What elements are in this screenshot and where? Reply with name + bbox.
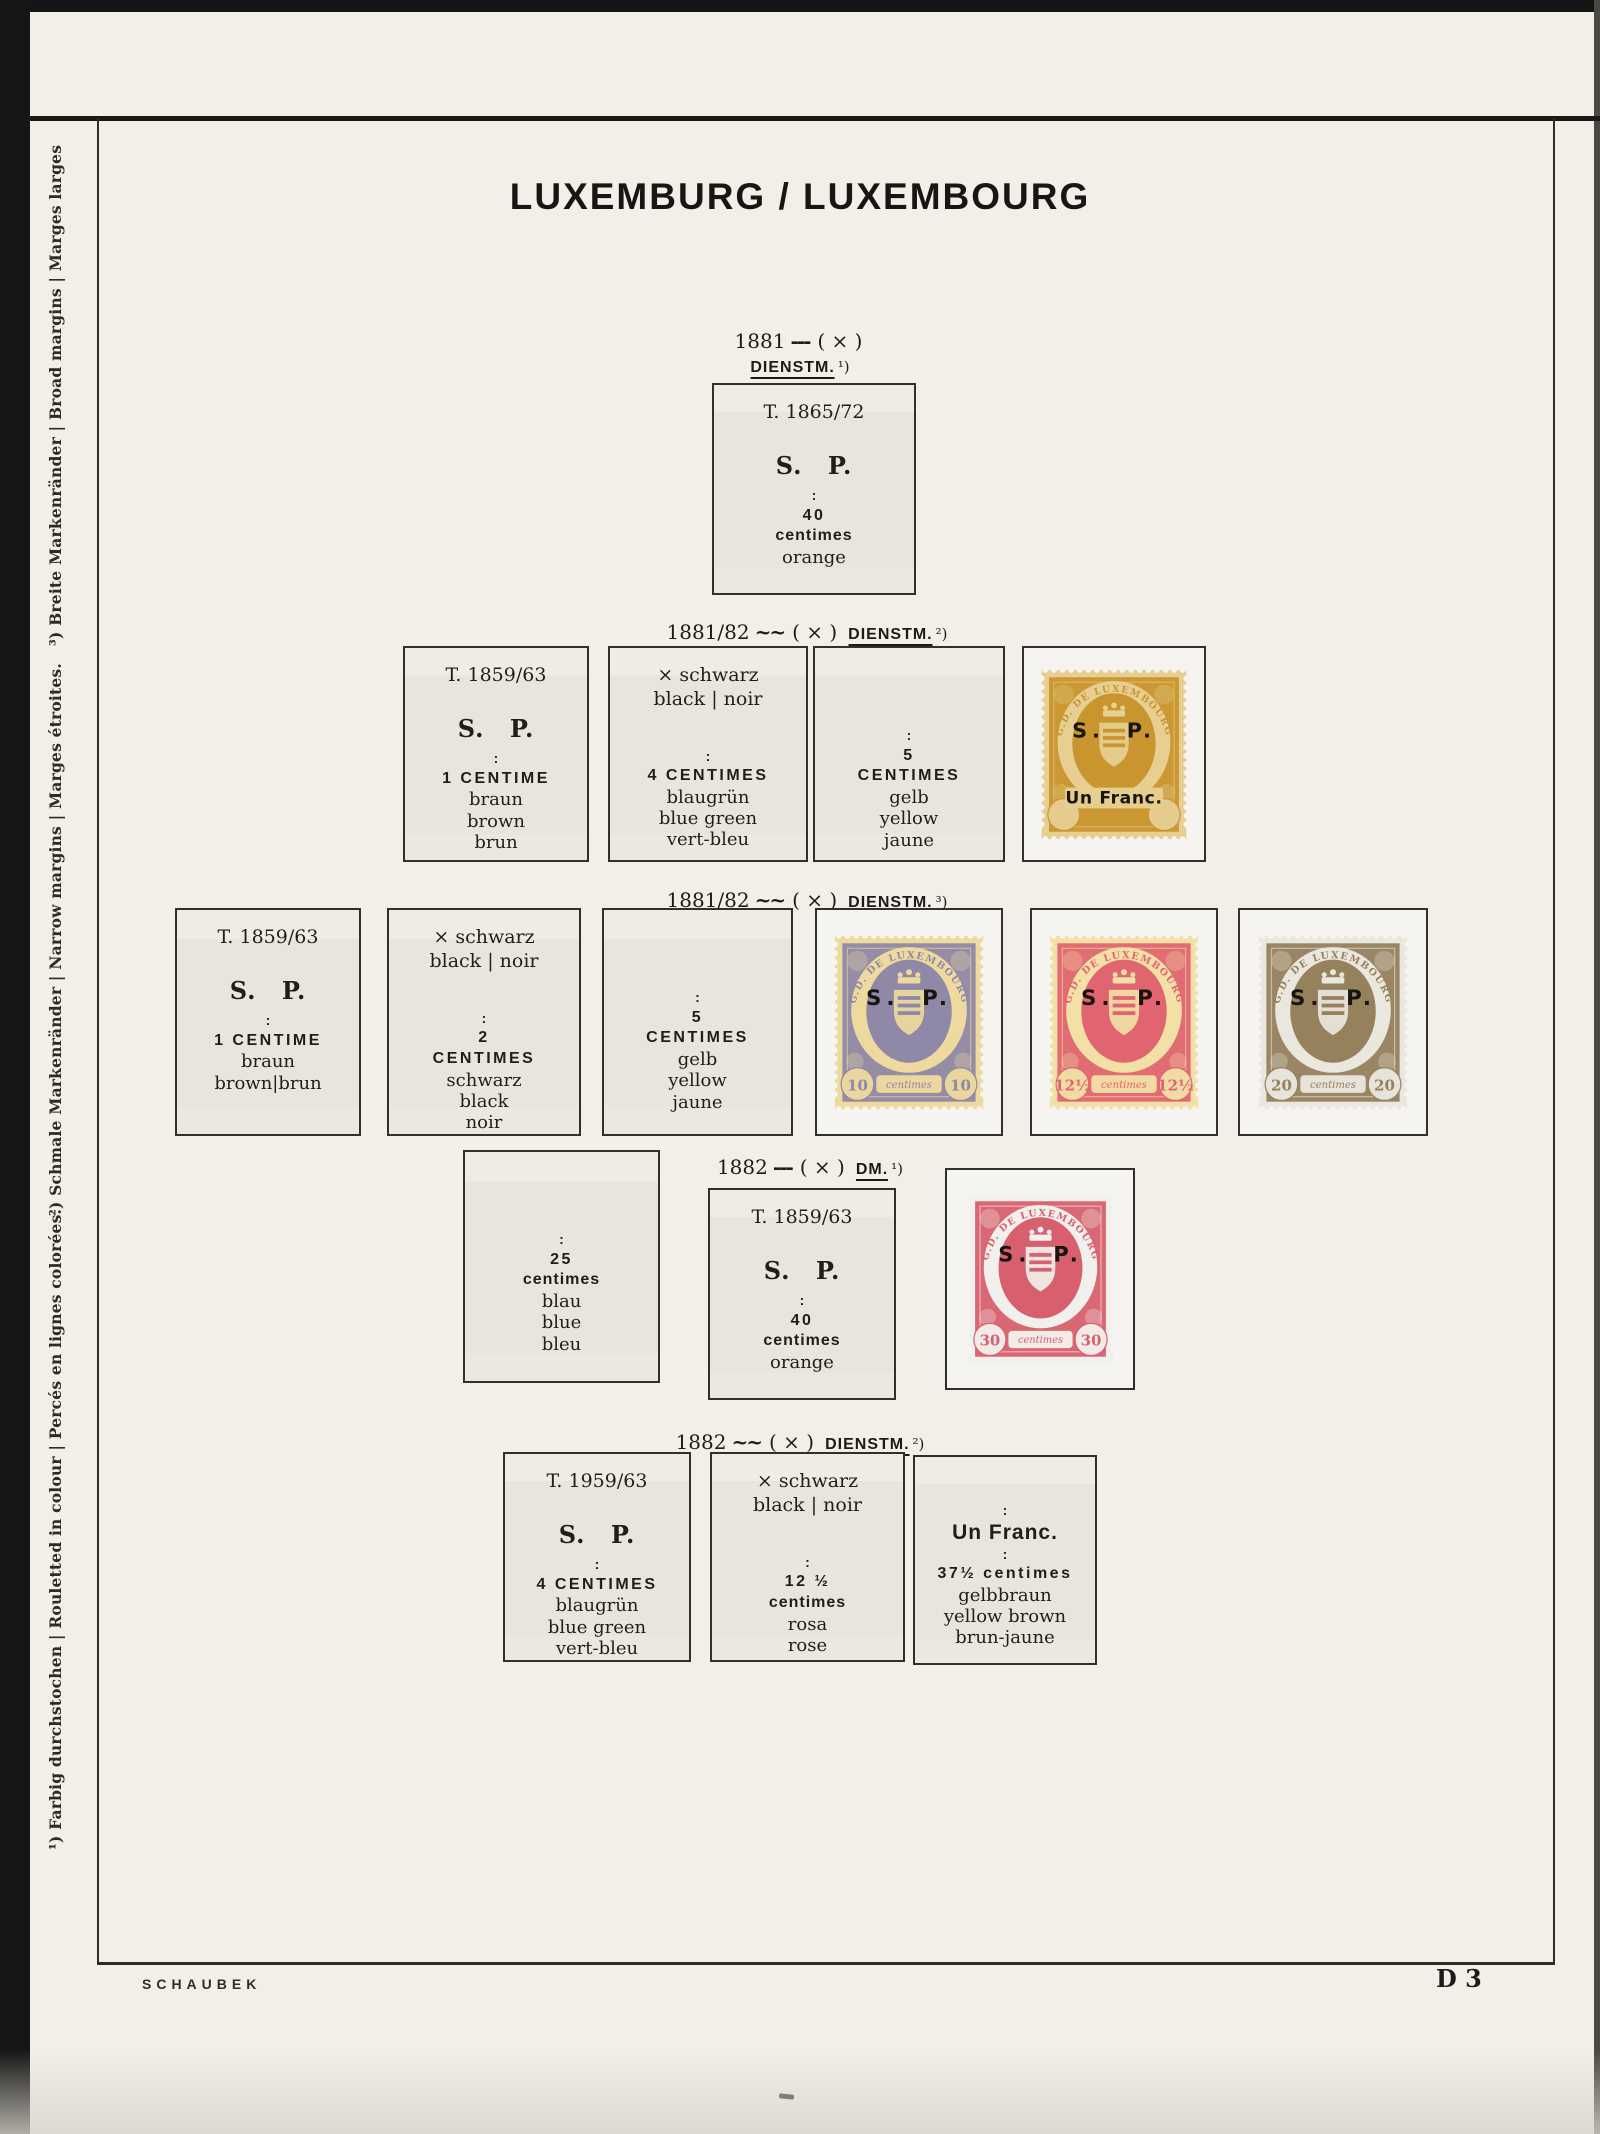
stamp-value-left: 30 <box>979 1333 1000 1350</box>
box-text-line: 40 <box>710 1311 894 1332</box>
placeholder-40-centimes-orange-2: T. 1859/63S. P.:40centimesorange <box>708 1188 896 1400</box>
box-text-line: brun <box>405 832 587 853</box>
sp-overprint-text: S. P. <box>866 985 952 1010</box>
box-text-line: : <box>604 991 791 1004</box>
placeholder-un-franc-37half: :Un Franc.:37½ centimesgelbbraunyellow b… <box>913 1455 1097 1665</box>
header-perf-mark: ( × ) <box>817 329 862 353</box>
box-text-line: gelb <box>604 1049 791 1070</box>
box-text-line: S. P. <box>714 451 914 480</box>
placeholder-5-centimes-gelb-narrow: :5CENTIMESgelbyellowjaune <box>602 908 793 1136</box>
box-text-line: centimes <box>710 1331 894 1352</box>
header-separator: ~~ <box>755 620 785 644</box>
box-text-line: CENTIMES <box>815 766 1003 787</box>
box-text-line: braun <box>177 1051 359 1072</box>
stamp-banner-text: centimes <box>1310 1079 1356 1090</box>
scan-edge-top <box>0 0 1600 12</box>
box-text-line: : <box>405 752 587 765</box>
placeholder-4-centimes-blaugruen: × schwarzblack | noir:4 CENTIMESblaugrün… <box>608 646 808 862</box>
header-date: 1881/82 <box>666 620 749 644</box>
stamp-value-left: 10 <box>847 1076 868 1094</box>
box-text-line: yellow brown <box>915 1606 1095 1627</box>
stamp-value-left: 20 <box>1271 1076 1292 1094</box>
header-footnote-ref: ²) <box>936 625 948 643</box>
scan-shadow-bottom <box>0 2050 1600 2134</box>
box-text-line: black | noir <box>712 1494 903 1518</box>
placeholder-4-centimes-blaugruen-2: T. 1959/63S. P.:4 CENTIMESblaugrünblue g… <box>503 1452 691 1662</box>
box-text-line: 4 CENTIMES <box>505 1575 689 1596</box>
box-text-line: : <box>714 489 914 502</box>
box-text-line: 37½ centimes <box>915 1564 1095 1585</box>
header-date-line: 1881---( × ) <box>735 329 866 353</box>
stamp-image-20c: G.D. DE LUXEMBOURG 20 20 centimes S. P. <box>1255 932 1411 1113</box>
box-text-line: CENTIMES <box>604 1028 791 1049</box>
placeholder-5-centimes-gelb: :5CENTIMESgelbyellowjaune <box>813 646 1005 862</box>
box-text-line: T. 1859/63 <box>177 926 359 948</box>
placeholder-12half-centimes-rosa: × schwarzblack | noir:12 ½centimesrosaro… <box>710 1452 905 1662</box>
box-text-line: bleu <box>465 1334 658 1355</box>
album-page-scan: LUXEMBURG / LUXEMBOURG ¹) Farbig durchst… <box>0 0 1600 2134</box>
header-label: DIENSTM. <box>848 626 932 646</box>
box-text-line: brown <box>405 811 587 832</box>
stamp-30-centimes-sp: G.D. DE LUXEMBOURG 30 30 centimes S. P. <box>945 1168 1135 1390</box>
box-text-line: gelbbraun <box>915 1585 1095 1606</box>
box-text-line: blue green <box>505 1617 689 1638</box>
stamp-banner-text: centimes <box>1017 1335 1062 1346</box>
box-text-line: S. P. <box>505 1520 689 1549</box>
box-text-line: : <box>177 1014 359 1027</box>
box-text-line: 1 CENTIME <box>177 1031 359 1052</box>
header-separator: --- <box>790 329 809 353</box>
placeholder-1-centime-braun: T. 1859/63S. P.:1 CENTIMEbraunbrownbrun <box>403 646 589 862</box>
box-text-line: noir <box>389 1112 579 1133</box>
box-text-line: × schwarz <box>712 1470 903 1494</box>
stamp-banner-text: centimes <box>886 1079 932 1090</box>
box-text-line: yellow <box>604 1070 791 1091</box>
header-perf-mark: ( × ) <box>792 620 837 644</box>
stamp-image-30c: G.D. DE LUXEMBOURG 30 30 centimes S. P. <box>964 1190 1117 1368</box>
svg-text:Un Franc.: Un Franc. <box>1065 788 1162 808</box>
box-text-line: 25 <box>465 1250 658 1271</box>
sp-overprint-text: S. P. <box>1072 718 1156 742</box>
placeholder-1-centime-braun-narrow: T. 1859/63S. P.:1 CENTIMEbraunbrown|brun <box>175 908 361 1136</box>
header-label: DIENSTM. <box>750 359 834 379</box>
box-text-line: : <box>389 1012 579 1025</box>
header-perf-mark: ( × ) <box>800 1155 845 1179</box>
section-header-1881: 1881---( × ) DIENSTM.¹) <box>735 329 866 377</box>
header-date: 1881 <box>735 329 786 353</box>
margin-note-3: ³) Breite Markenränder | Broad margins |… <box>46 145 65 646</box>
box-text-line: 5 <box>604 1008 791 1029</box>
box-text-line: : <box>610 750 806 763</box>
margin-note-2: ²) Schmale Markenränder | Narrow margins… <box>46 663 65 1216</box>
sp-overprint-text: S. P. <box>1081 985 1167 1010</box>
box-text-line: 4 CENTIMES <box>610 766 806 787</box>
placeholder-40-centimes-orange: T. 1865/72S. P.:40centimesorange <box>712 383 916 595</box>
header-perf-mark: ( × ) <box>769 1430 814 1454</box>
margin-note-1: ¹) Farbig durchstochen | Rouletted in co… <box>46 1209 65 1850</box>
stamp-value-right: 12½ <box>1157 1076 1194 1094</box>
header-footnote-ref: ²) <box>913 1435 925 1453</box>
box-text-line: : <box>712 1556 903 1569</box>
box-text-line: vert-bleu <box>505 1638 689 1659</box>
sp-overprint-text: S. P. <box>998 1243 1082 1267</box>
box-text-line: black <box>389 1091 579 1112</box>
box-text-line: T. 1865/72 <box>714 401 914 423</box>
stamp-image-12c: G.D. DE LUXEMBOURG 12½ 12½ centimes S. P… <box>1046 932 1202 1113</box>
box-text-line: brown|brun <box>177 1073 359 1094</box>
box-text-line: blau <box>465 1291 658 1312</box>
header-separator: --- <box>773 1155 792 1179</box>
box-text-line: jaune <box>815 830 1003 851</box>
box-text-line: S. P. <box>177 976 359 1005</box>
box-text-line: S. P. <box>405 714 587 743</box>
box-text-line: 12 ½ <box>712 1572 903 1593</box>
section-header-1882-b: 1882~~( × )DIENSTM.²) <box>676 1430 925 1454</box>
box-text-line: centimes <box>714 526 914 547</box>
box-text-line: S. P. <box>710 1256 894 1285</box>
box-text-line: braun <box>405 789 587 810</box>
box-text-line: orange <box>714 547 914 568</box>
box-text-line: schwarz <box>389 1070 579 1091</box>
box-text-line: brun-jaune <box>915 1627 1095 1648</box>
box-text-line: : <box>710 1294 894 1307</box>
box-text-line: : <box>465 1233 658 1246</box>
box-text-line: vert-bleu <box>610 829 806 850</box>
page-title: LUXEMBURG / LUXEMBOURG <box>510 176 1091 218</box>
box-text-line: T. 1959/63 <box>505 1470 689 1492</box>
page-number: D 3 <box>1436 1964 1482 1993</box>
box-text-line: yellow <box>815 808 1003 829</box>
box-text-line: CENTIMES <box>389 1049 579 1070</box>
section-header-1881-82-a: 1881/82~~( × )DIENSTM.²) <box>666 620 947 644</box>
box-text-line: × schwarz <box>610 664 806 688</box>
box-text-line: centimes <box>712 1593 903 1614</box>
publisher-imprint: SCHAUBEK <box>142 1976 261 1992</box>
box-text-line: 5 <box>815 746 1003 767</box>
stamp-10-centimes-sp: G.D. DE LUXEMBOURG 10 10 centimes S. P. <box>815 908 1003 1136</box>
box-text-line: black | noir <box>610 688 806 712</box>
stamp-image-un-franc: G.D. DE LUXEMBOURG S. P. Un Franc. <box>1038 666 1190 843</box>
box-text-line: rose <box>712 1635 903 1656</box>
box-text-line: : <box>915 1504 1095 1517</box>
box-text-line: blaugrün <box>610 787 806 808</box>
box-text-line: : <box>815 729 1003 742</box>
stamp-value-right: 30 <box>1080 1333 1101 1350</box>
stamp-image-10c: G.D. DE LUXEMBOURG 10 10 centimes S. P. <box>831 932 987 1113</box>
header-footnote-ref: ¹) <box>891 1160 903 1178</box>
header-label: DM. <box>856 1161 888 1181</box>
header-date: 1882 <box>676 1430 727 1454</box>
box-text-line: × schwarz <box>389 926 579 950</box>
box-text-line: 40 <box>714 506 914 527</box>
stamp-value-right: 10 <box>950 1076 971 1094</box>
box-text-line: black | noir <box>389 950 579 974</box>
header-separator: ~~ <box>731 1430 761 1454</box>
box-text-line: Un Franc. <box>915 1521 1095 1545</box>
box-text-line: 1 CENTIME <box>405 769 587 790</box>
scan-edge-left <box>0 0 30 2134</box>
stamp-value-right: 20 <box>1374 1076 1395 1094</box>
box-text-line: T. 1859/63 <box>710 1206 894 1228</box>
placeholder-25-centimes-blau: :25centimesblaubluebleu <box>463 1150 660 1383</box>
un-franc-overprint-bar: Un Franc. <box>1065 787 1163 808</box>
box-text-line: centimes <box>465 1270 658 1291</box>
header-footnote-ref: ¹) <box>838 358 850 376</box>
box-text-line: blue <box>465 1312 658 1333</box>
box-text-line: T. 1859/63 <box>405 664 587 686</box>
box-text-line: gelb <box>815 787 1003 808</box>
box-text-line: : <box>505 1558 689 1571</box>
section-header-1882-a: 1882---( × )DM.¹) <box>717 1155 903 1179</box>
box-text-line: blue green <box>610 808 806 829</box>
stamp-un-franc-overprint: G.D. DE LUXEMBOURG S. P. Un Franc. <box>1022 646 1206 862</box>
box-text-line: : <box>915 1548 1095 1561</box>
box-text-line: rosa <box>712 1614 903 1635</box>
stamp-value-left: 12½ <box>1054 1076 1091 1094</box>
box-text-line: jaune <box>604 1092 791 1113</box>
header-label-line: DIENSTM.¹) <box>735 353 866 377</box>
box-text-line: orange <box>710 1352 894 1373</box>
sp-overprint-text: S. P. <box>1290 985 1376 1010</box>
header-date: 1882 <box>717 1155 768 1179</box>
scan-edge-right <box>1594 0 1600 2134</box>
stamp-12half-centimes-sp: G.D. DE LUXEMBOURG 12½ 12½ centimes S. P… <box>1030 908 1218 1136</box>
stamp-20-centimes-sp: G.D. DE LUXEMBOURG 20 20 centimes S. P. <box>1238 908 1428 1136</box>
placeholder-2-centimes-schwarz: × schwarzblack | noir:2CENTIMESschwarzbl… <box>387 908 581 1136</box>
box-text-line: 2 <box>389 1028 579 1049</box>
box-text-line: blaugrün <box>505 1595 689 1616</box>
stamp-banner-text: centimes <box>1101 1079 1147 1090</box>
